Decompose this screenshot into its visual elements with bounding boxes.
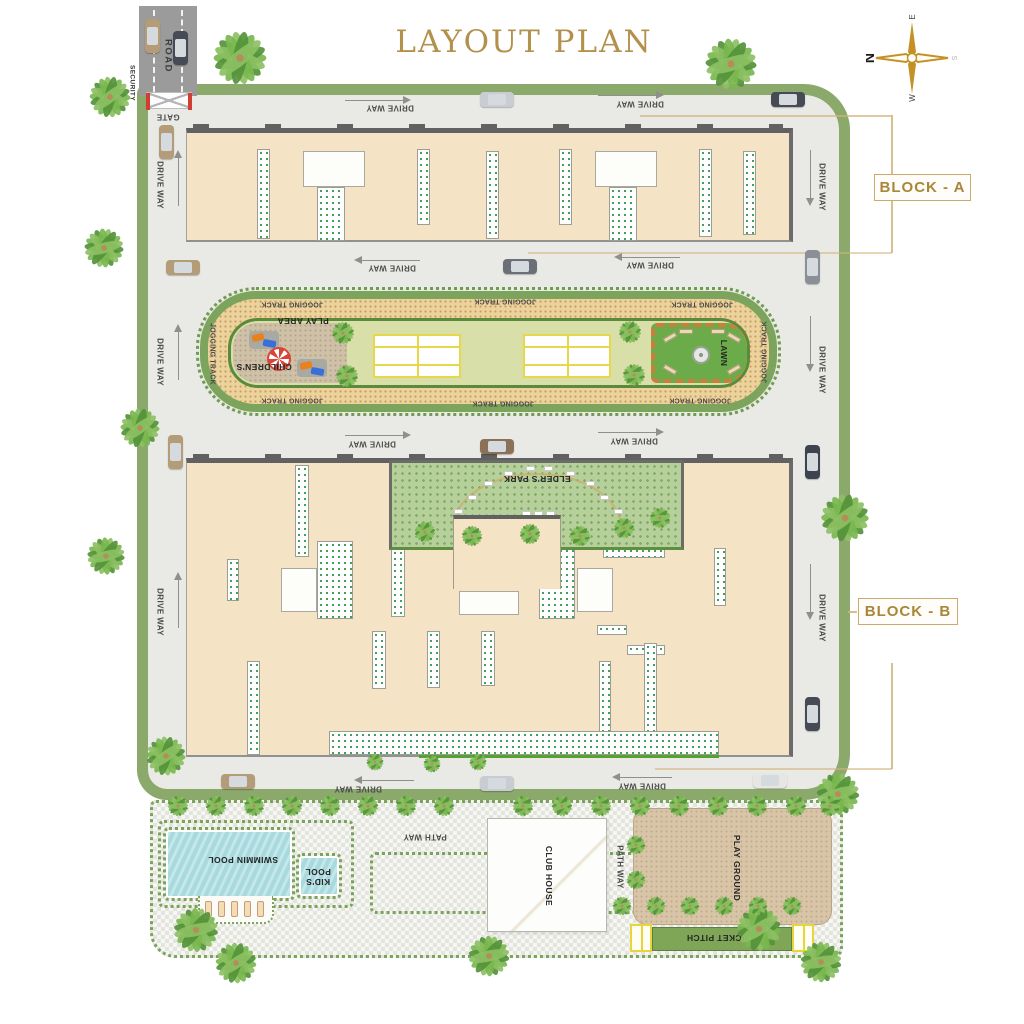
childrens-play-area (233, 323, 347, 383)
jogging-track-label: JOGGING TRACK (472, 400, 534, 407)
play-equipment (297, 359, 327, 377)
gate-post (188, 93, 192, 110)
road-label: ROAD (163, 39, 174, 73)
childrens-label: CHILDREN'S (236, 362, 292, 372)
light-well (372, 631, 386, 689)
park-bench (586, 481, 595, 486)
arrow-head (806, 198, 814, 210)
pool-lounger (205, 901, 212, 917)
car-cab (761, 775, 779, 786)
gate-label: GATE (156, 113, 179, 122)
kids-pool-label: KID'S POOL (301, 866, 335, 886)
arrow-head (174, 146, 182, 158)
hedge-line (419, 755, 719, 758)
gate-post (146, 93, 150, 110)
light-well (609, 187, 637, 241)
compass-south: S (952, 55, 958, 60)
direction-arrow-icon (174, 570, 182, 628)
arrow-shaft (810, 564, 812, 616)
compass-east: E (908, 14, 917, 19)
arrow-shaft (618, 257, 680, 259)
palm-tree-icon (84, 534, 128, 583)
cricket-pitch-label: CRICKET PITCH (687, 933, 758, 943)
garden-bench (711, 329, 725, 334)
direction-arrow-icon (806, 316, 814, 374)
car-cab (229, 776, 247, 787)
block-b-bracket (848, 611, 857, 613)
compass-north: N (866, 53, 877, 63)
car-cab (488, 441, 506, 452)
arrow-shaft (178, 576, 180, 628)
arrow-shaft (178, 154, 180, 206)
car-icon (145, 19, 160, 53)
compass-west: W (908, 94, 917, 102)
car-cab (147, 27, 158, 45)
block-a-bracket (891, 201, 893, 253)
club-house-label: CLUB HOUSE (544, 846, 554, 906)
arrow-shaft (810, 150, 812, 202)
car-icon (503, 259, 537, 274)
car-cab (779, 94, 797, 105)
arrow-shaft (178, 328, 180, 380)
garden-bench (663, 332, 678, 343)
block-a-bracket (528, 252, 892, 254)
lobby-inset (459, 591, 519, 615)
car-cab (807, 453, 818, 471)
light-well (247, 661, 260, 755)
driveway-label: DRIVE WAY (610, 437, 658, 446)
light-well (417, 149, 430, 225)
driveway-label: DRIVE WAY (616, 100, 664, 109)
direction-arrow-icon (806, 564, 814, 622)
car-cab (488, 94, 506, 105)
car-cab (807, 705, 818, 723)
block-b-label: BLOCK - B (858, 598, 958, 625)
direction-arrow-icon (345, 431, 413, 439)
arrow-head (656, 428, 668, 436)
sports-court (523, 334, 611, 378)
park-bench (544, 466, 553, 471)
direction-arrow-icon (610, 773, 672, 781)
arrow-shaft (598, 432, 660, 434)
driveway-label: DRIVE WAY (818, 346, 827, 394)
car-icon (805, 697, 820, 731)
jogging-track-label: JOGGING TRACK (261, 397, 323, 404)
lobby-inset (303, 151, 365, 187)
arrow-shaft (358, 260, 420, 262)
block-a-label-text: BLOCK - A (880, 179, 966, 196)
driveway-label: DRIVE WAY (368, 264, 416, 273)
light-well (559, 149, 572, 225)
park-bench (614, 509, 623, 514)
light-well (391, 543, 405, 617)
pool-lounger (231, 901, 238, 917)
parapet-tabs (193, 454, 783, 458)
jogging-track-label: JOGGING TRACK (669, 397, 731, 404)
car-icon (805, 250, 820, 284)
jogging-track-label: JOGGING TRACK (261, 301, 323, 308)
block-b-bracket (655, 768, 892, 770)
light-well (486, 151, 499, 239)
car-icon (805, 445, 820, 479)
park-bench (526, 466, 535, 471)
car-cab (511, 261, 529, 272)
arrow-head (350, 256, 362, 264)
entrance-gate (146, 92, 192, 109)
block-a-bracket (891, 115, 893, 175)
direction-arrow-icon (174, 322, 182, 380)
light-well (743, 151, 756, 235)
car-icon (771, 92, 805, 107)
car-cab (174, 262, 192, 273)
light-well (481, 631, 495, 686)
arrow-head (403, 431, 415, 439)
block-b-center-tower (453, 515, 561, 589)
arrow-shaft (345, 435, 407, 437)
arrow-head (174, 320, 182, 332)
track-infield (228, 318, 750, 388)
layout-plan: LAYOUT PLAN N E S W (0, 0, 1024, 1024)
direction-arrow-icon (806, 150, 814, 208)
arrow-head (656, 91, 668, 99)
car-icon (173, 31, 188, 65)
arrow-head (806, 364, 814, 376)
arrow-head (403, 96, 415, 104)
pool-lounger (244, 901, 251, 917)
path-way-label: PATH WAY (403, 833, 447, 842)
courtyard-paving (329, 731, 719, 755)
elders-park-label: ELDER'S PARK (503, 474, 570, 484)
driveway-label: DRIVE WAY (366, 104, 414, 113)
direction-arrow-icon (345, 96, 413, 104)
garden-bench (679, 329, 693, 334)
light-well (597, 625, 627, 635)
block-a-bracket (640, 115, 892, 117)
lobby-inset (577, 568, 613, 612)
block-b-label-text: BLOCK - B (865, 603, 952, 620)
driveway-label: DRIVE WAY (156, 588, 165, 636)
arrow-shaft (616, 777, 672, 779)
lobby-inset (281, 568, 317, 612)
light-well (227, 559, 239, 601)
block-b-bracket (891, 663, 893, 769)
car-icon (159, 125, 174, 159)
block-b-building (186, 458, 793, 757)
driveway-label: DRIVE WAY (618, 782, 666, 791)
car-cab (488, 778, 506, 789)
direction-arrow-icon (598, 91, 666, 99)
car-icon (480, 92, 514, 107)
jogging-track-label: JOGGING TRACK (762, 321, 769, 383)
direction-arrow-icon (598, 428, 666, 436)
play-equipment (249, 331, 279, 349)
direction-arrow-icon (174, 148, 182, 206)
arrow-head (608, 773, 620, 781)
page-title: LAYOUT PLAN (395, 24, 652, 60)
light-well (699, 149, 712, 237)
jogging-track-label: JOGGING TRACK (209, 323, 216, 385)
car-cab (161, 133, 172, 151)
light-well (714, 548, 726, 606)
cricket-wicket (630, 924, 652, 952)
play-ground-label: PLAY GROUND (732, 835, 742, 901)
driveway-label: DRIVE WAY (348, 440, 396, 449)
arrow-shaft (810, 316, 812, 368)
park-bench (600, 495, 609, 500)
lobby-inset (595, 151, 657, 187)
arrow-shaft (598, 95, 660, 97)
car-cab (175, 39, 186, 57)
arrow-head (350, 776, 362, 784)
arrow-head (806, 612, 814, 624)
arrow-shaft (345, 100, 407, 102)
car-icon (480, 439, 514, 454)
light-well (427, 631, 440, 688)
path-way-label: PATH WAY (616, 845, 625, 889)
jogging-track-label: JOGGING TRACK (671, 301, 733, 308)
car-icon (166, 260, 200, 275)
jogging-track-label: JOGGING TRACK (474, 298, 536, 305)
driveway-label: DRIVE WAY (334, 785, 382, 794)
block-a-building (186, 128, 793, 242)
park-bench (454, 509, 463, 514)
light-well (317, 187, 345, 241)
lawn (651, 323, 750, 383)
driveway-label: DRIVE WAY (818, 163, 827, 211)
light-well (295, 465, 309, 557)
light-well (317, 541, 353, 619)
direction-arrow-icon (612, 253, 680, 261)
lounger-bay (198, 896, 274, 924)
driveway-label: DRIVE WAY (626, 261, 674, 270)
cricket-wicket (792, 924, 814, 952)
car-cab (807, 258, 818, 276)
arrow-head (610, 253, 622, 261)
sports-court (373, 334, 461, 378)
park-bench (484, 481, 493, 486)
block-a-label: BLOCK - A (874, 174, 971, 201)
driveway-label: DRIVE WAY (818, 594, 827, 642)
security-label: SECURITY (129, 65, 136, 101)
car-cab (170, 443, 181, 461)
swimming-pool-label: SWIMMIN POOL (208, 855, 278, 865)
driveway-label: DRIVE WAY (156, 338, 165, 386)
palm-tree-icon (81, 225, 127, 276)
car-icon (221, 774, 255, 789)
light-well (257, 149, 270, 239)
pool-lounger (218, 901, 225, 917)
parapet-tabs (193, 124, 783, 128)
fountain (692, 346, 710, 364)
compass-icon: N E S W (866, 12, 958, 104)
park-bench (468, 495, 477, 500)
pool-lounger (257, 901, 264, 917)
arrow-head (174, 568, 182, 580)
lawn-label: LAWN (719, 340, 729, 367)
garden-bench (663, 364, 678, 375)
car-icon (168, 435, 183, 469)
direction-arrow-icon (352, 776, 414, 784)
driveway-label: DRIVE WAY (156, 161, 165, 209)
car-icon (753, 773, 787, 788)
play-area-label: PLAY AREA (277, 316, 328, 326)
direction-arrow-icon (352, 256, 420, 264)
car-icon (480, 776, 514, 791)
arrow-shaft (358, 780, 414, 782)
palm-tree-icon (86, 73, 134, 126)
